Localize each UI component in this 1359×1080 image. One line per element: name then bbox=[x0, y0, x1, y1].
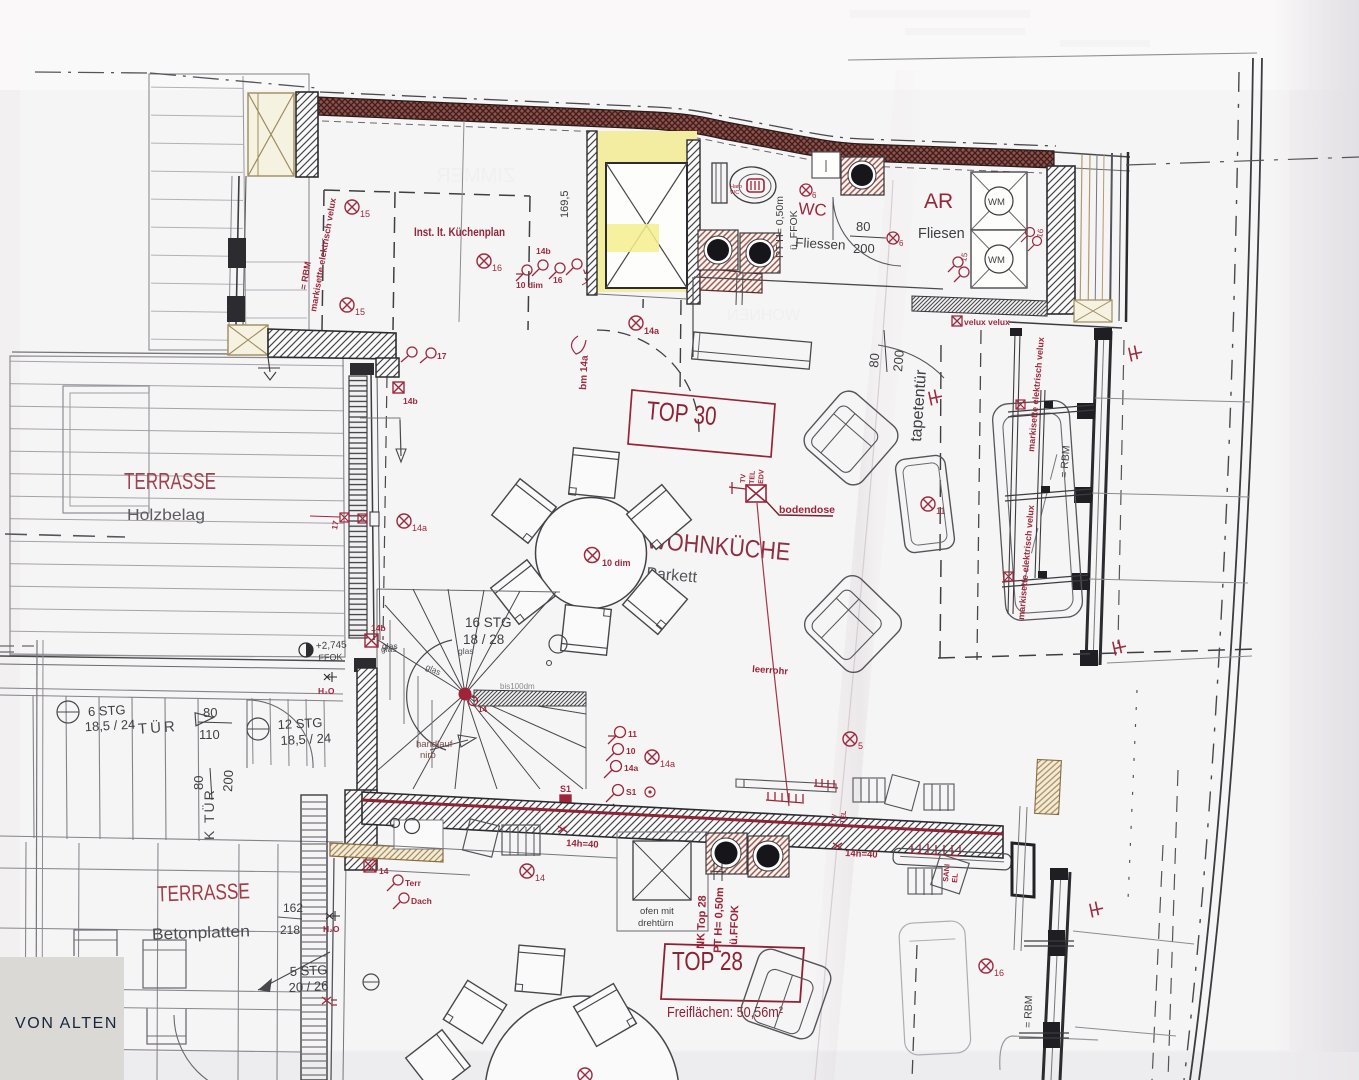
svg-text:TOP 30: TOP 30 bbox=[645, 395, 717, 431]
svg-text:PT H= 0,50m: PT H= 0,50m bbox=[712, 887, 726, 953]
svg-text:Inst. lt. Küchenplan: Inst. lt. Küchenplan bbox=[414, 225, 505, 239]
svg-text:VON ALTEN: VON ALTEN bbox=[15, 1015, 118, 1032]
svg-text:18,5 / 24: 18,5 / 24 bbox=[280, 730, 331, 748]
svg-text:80: 80 bbox=[203, 705, 217, 720]
svg-text:11: 11 bbox=[628, 729, 637, 739]
svg-text:17: 17 bbox=[437, 351, 447, 361]
svg-text:16: 16 bbox=[492, 263, 502, 273]
svg-text:H₂O: H₂O bbox=[318, 686, 335, 696]
svg-text:TEL: TEL bbox=[840, 810, 848, 825]
svg-text:WM: WM bbox=[988, 255, 1005, 266]
svg-text:80: 80 bbox=[856, 219, 870, 234]
svg-text:+2,745: +2,745 bbox=[316, 640, 348, 653]
svg-text:ü.FFOK: ü.FFOK bbox=[728, 905, 741, 945]
svg-text:169,5: 169,5 bbox=[559, 190, 571, 218]
svg-text:velux velux: velux velux bbox=[964, 317, 1010, 327]
svg-text:14b: 14b bbox=[371, 623, 386, 633]
svg-text:14a: 14a bbox=[412, 523, 427, 533]
svg-text:10 dim: 10 dim bbox=[602, 558, 631, 568]
svg-text:WC: WC bbox=[798, 199, 828, 220]
svg-text:200: 200 bbox=[890, 349, 907, 372]
svg-text:16: 16 bbox=[553, 275, 563, 285]
svg-text:Fliessen: Fliessen bbox=[795, 235, 846, 253]
svg-text:FFOK: FFOK bbox=[318, 652, 342, 663]
svg-text:bm 14a: bm 14a bbox=[578, 355, 591, 390]
svg-text:NK Top 28: NK Top 28 bbox=[695, 895, 709, 949]
svg-text:14a: 14a bbox=[644, 326, 660, 336]
svg-text:20 / 26: 20 / 26 bbox=[288, 978, 328, 995]
svg-text:18 / 28: 18 / 28 bbox=[463, 632, 504, 647]
svg-text:110: 110 bbox=[199, 727, 220, 742]
svg-text:WC: WC bbox=[730, 190, 739, 196]
svg-text:TERRASSE: TERRASSE bbox=[124, 468, 216, 494]
svg-text:80: 80 bbox=[866, 353, 882, 369]
svg-text:EL: EL bbox=[950, 872, 960, 883]
svg-text:S1: S1 bbox=[626, 787, 637, 797]
svg-text:6: 6 bbox=[899, 239, 904, 248]
svg-text:14a: 14a bbox=[660, 759, 675, 769]
svg-text:bis100dm: bis100dm bbox=[500, 682, 535, 691]
svg-text:Terr: Terr bbox=[405, 878, 422, 888]
svg-text:10 dim: 10 dim bbox=[516, 280, 543, 290]
svg-text:218: 218 bbox=[280, 923, 300, 937]
svg-text:14: 14 bbox=[535, 873, 545, 883]
svg-text:16 STG: 16 STG bbox=[465, 615, 512, 630]
svg-text:TV: TV bbox=[831, 813, 839, 823]
svg-text:15: 15 bbox=[355, 307, 365, 317]
svg-text:TV: TV bbox=[740, 473, 747, 483]
svg-text:bodendose: bodendose bbox=[779, 504, 835, 516]
svg-text:5: 5 bbox=[858, 741, 863, 751]
svg-text:12 STG: 12 STG bbox=[277, 715, 323, 732]
svg-text:10: 10 bbox=[626, 746, 636, 756]
svg-text:nirb: nirb bbox=[420, 750, 436, 761]
svg-text:AR: AR bbox=[924, 190, 953, 213]
svg-text:14: 14 bbox=[478, 705, 487, 714]
svg-text:5 STG: 5 STG bbox=[289, 962, 327, 979]
svg-text:ZIMMER: ZIMMER bbox=[436, 165, 515, 187]
svg-text:Fliesen: Fliesen bbox=[918, 226, 965, 242]
svg-text:18,5 / 24: 18,5 / 24 bbox=[84, 717, 135, 735]
svg-text:6: 6 bbox=[812, 191, 817, 200]
svg-text:162: 162 bbox=[283, 901, 303, 915]
svg-text:S1: S1 bbox=[560, 784, 571, 794]
svg-text:H₂O: H₂O bbox=[323, 924, 340, 934]
svg-text:drehtürn: drehtürn bbox=[638, 918, 673, 929]
svg-text:TEL: TEL bbox=[749, 470, 757, 484]
svg-text:14: 14 bbox=[379, 866, 389, 876]
svg-text:K TÜR: K TÜR bbox=[200, 788, 217, 840]
svg-text:WOHNEN: WOHNEN bbox=[727, 307, 800, 324]
svg-text:14a: 14a bbox=[624, 763, 638, 773]
svg-text:TÜR: TÜR bbox=[137, 717, 178, 738]
svg-text:Dach: Dach bbox=[411, 896, 432, 906]
svg-text:14b: 14b bbox=[536, 246, 551, 256]
svg-text:11: 11 bbox=[936, 506, 945, 516]
svg-text:16: 16 bbox=[994, 968, 1004, 978]
svg-text:15: 15 bbox=[360, 209, 370, 219]
svg-text:glas: glas bbox=[458, 646, 474, 656]
svg-text:WM: WM bbox=[988, 197, 1005, 208]
svg-text:Freiflächen: 50,56m²: Freiflächen: 50,56m² bbox=[667, 1004, 783, 1021]
svg-text:14b: 14b bbox=[403, 396, 418, 406]
svg-text:ofen mit: ofen mit bbox=[640, 906, 674, 917]
svg-text:glas: glas bbox=[382, 641, 398, 651]
svg-text:14h=40: 14h=40 bbox=[566, 838, 599, 851]
svg-text:= RBM: = RBM bbox=[1022, 995, 1035, 1028]
svg-text:EDV: EDV bbox=[758, 469, 766, 484]
svg-text:200: 200 bbox=[220, 770, 236, 792]
svg-text:80: 80 bbox=[191, 776, 206, 790]
svg-text:PT H= 0,50m: PT H= 0,50m bbox=[774, 196, 786, 258]
svg-text:14h=40: 14h=40 bbox=[845, 848, 878, 861]
svg-text:TERRASSE: TERRASSE bbox=[157, 878, 251, 906]
svg-text:TOP 28: TOP 28 bbox=[672, 946, 743, 976]
svg-text:Holzbelag: Holzbelag bbox=[127, 507, 205, 524]
